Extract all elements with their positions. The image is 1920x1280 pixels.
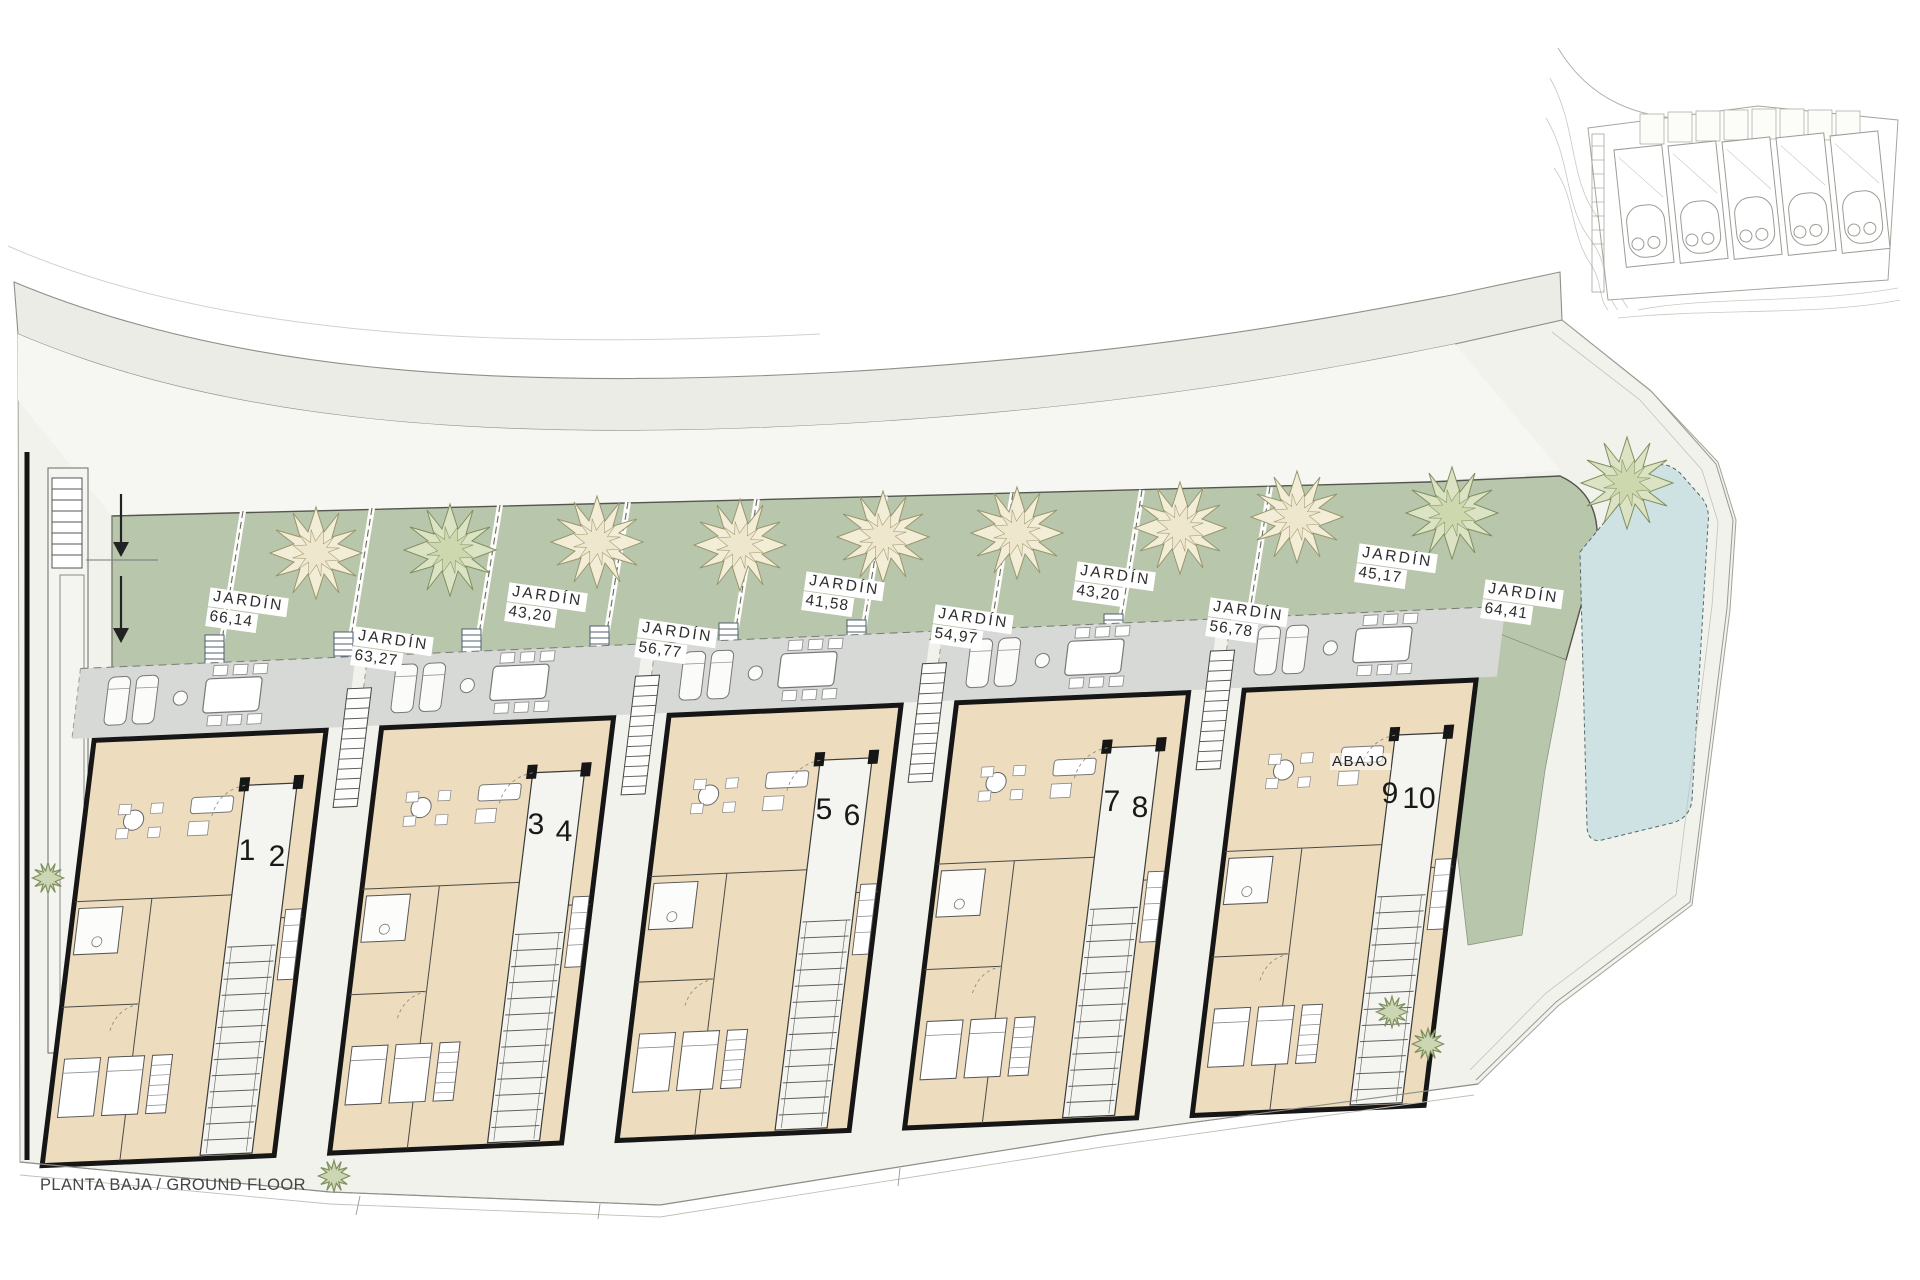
terrace <box>72 656 356 738</box>
unit-number-4: 4 <box>556 815 573 849</box>
unit-number-10: 10 <box>1402 782 1435 816</box>
unit-number-3: 3 <box>528 808 545 842</box>
unit-number-8: 8 <box>1132 791 1149 825</box>
site-key-map <box>1546 48 1900 318</box>
unit-number-7: 7 <box>1104 785 1121 819</box>
unit-number-5: 5 <box>816 793 833 827</box>
floor-title: PLANTA BAJA / GROUND FLOOR <box>40 1176 306 1195</box>
unit-number-9: 9 <box>1382 777 1399 811</box>
building-row <box>20 606 1506 1166</box>
abajo-stair-note: ABAJO <box>1330 753 1391 770</box>
key-map-blocks <box>1614 131 1890 267</box>
unit-number-1: 1 <box>239 834 256 868</box>
unit-number-6: 6 <box>844 799 861 833</box>
unit-number-2: 2 <box>269 840 286 874</box>
floor-plan-page: JARDÍN66,14 JARDÍN63,27 JARDÍN43,20 JARD… <box>0 0 1920 1280</box>
stairs-icon <box>52 478 82 568</box>
